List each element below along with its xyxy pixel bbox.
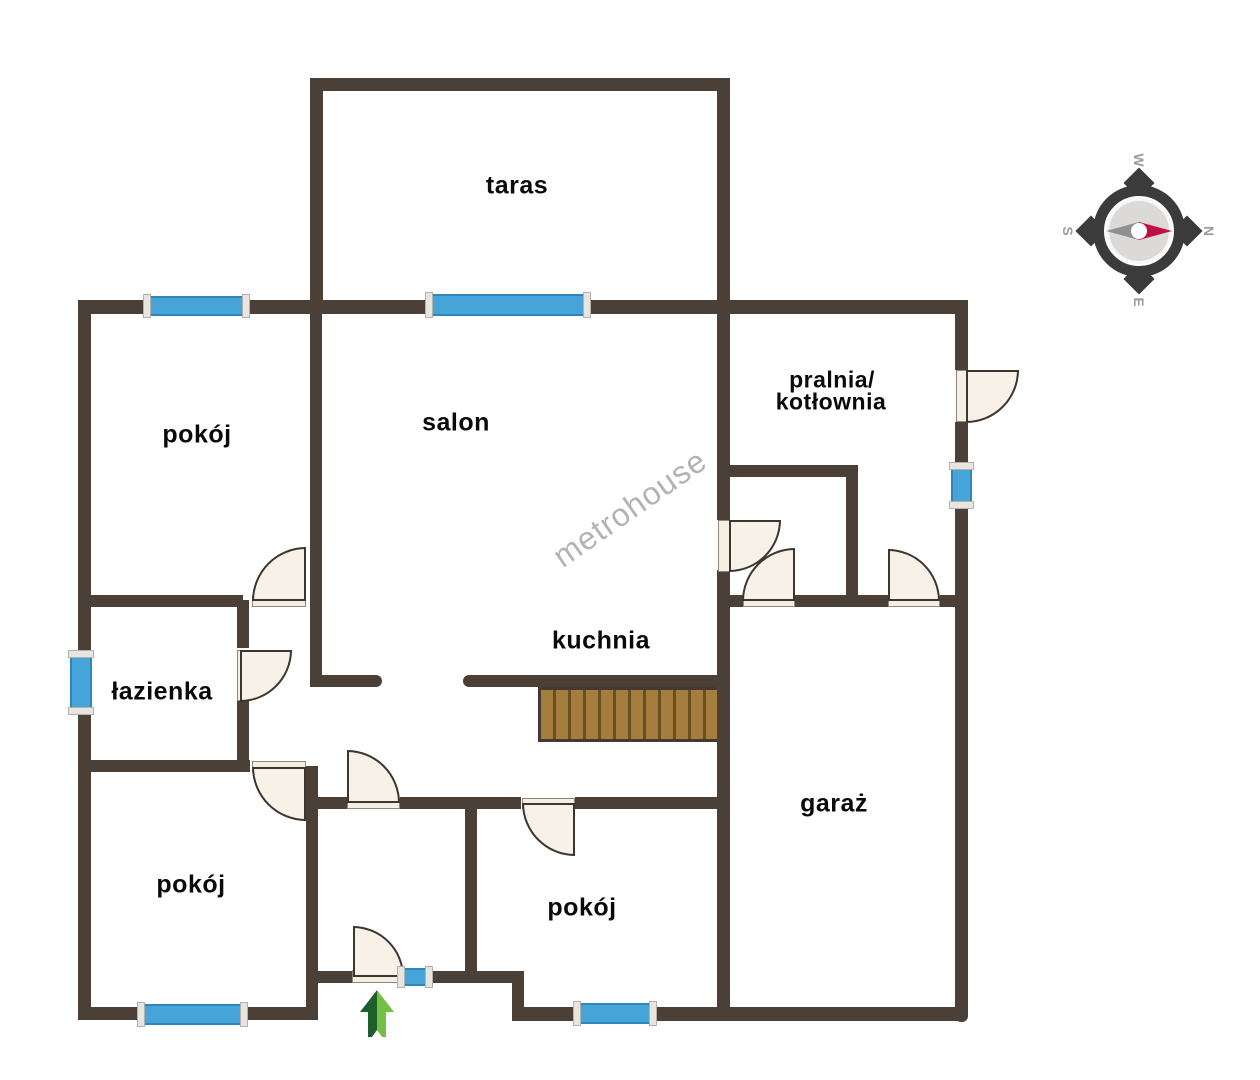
wall-lazienka-south <box>78 760 250 772</box>
compass-label-e: E <box>1131 297 1147 306</box>
compass-center-dot <box>1131 223 1147 239</box>
door-vestibule-corridor <box>347 750 400 803</box>
entrance-arrow-icon <box>352 985 402 1048</box>
wall-vestibule-south-1 <box>312 971 352 983</box>
label-pokoj-bottom-middle: pokój <box>547 894 616 923</box>
window-pralnia <box>951 467 972 504</box>
wall-kuchnia-south <box>463 675 723 687</box>
wall-house-east-upper <box>955 300 968 370</box>
window-pokoj-bottom-middle <box>578 1003 652 1024</box>
label-pralnia-line2: kotłownia <box>776 389 887 416</box>
label-kuchnia: kuchnia <box>552 627 650 656</box>
door-pokoj-top-left <box>252 547 306 601</box>
window-pokoj-bottom-left <box>142 1004 243 1025</box>
label-lazienka: łazienka <box>111 678 212 707</box>
door-pralnia-garage <box>888 549 940 601</box>
wall-taras-north <box>310 78 730 91</box>
wall-taras-west <box>310 78 323 306</box>
door-pokoj-bottom-middle <box>522 803 575 856</box>
door-pralnia-exterior <box>966 370 1019 423</box>
compass-label-n: N <box>1201 226 1217 236</box>
door-pokoj-bottom-left <box>252 767 306 821</box>
wall-vestibule-jog <box>512 971 524 1020</box>
wall-garage-north-3 <box>940 595 968 607</box>
window-taras-salon <box>430 294 586 316</box>
compass-rose: N E S W <box>1059 151 1219 311</box>
window-vestibule <box>402 968 428 986</box>
wall-vestibule-east <box>465 803 477 977</box>
wall-garage-north-1 <box>723 595 743 607</box>
label-pokoj-top-left: pokój <box>162 421 231 450</box>
wall-pralnia-inner-v <box>846 465 858 602</box>
wall-corridor-south-2 <box>400 797 521 809</box>
wall-house-east-lower <box>955 422 968 1022</box>
wall-lazienka-north <box>78 595 243 607</box>
compass-label-s: S <box>1060 226 1076 235</box>
window-pokoj-top-left <box>148 296 245 316</box>
wall-corridor-south-1 <box>318 797 347 809</box>
wall-vestibule-south-2 <box>427 971 512 983</box>
wall-garage-north-2 <box>795 595 888 607</box>
door-lazienka <box>240 650 292 702</box>
window-lazienka <box>70 655 92 710</box>
label-taras: taras <box>486 172 548 201</box>
wall-lazienka-east-lower <box>237 700 249 765</box>
label-salon: salon <box>422 409 490 438</box>
wall-salon-south <box>310 675 382 687</box>
wall-central-lower <box>717 570 730 1013</box>
wall-pralnia-inner-h <box>730 465 858 477</box>
floor-plan: metrohouse <box>0 0 1260 1080</box>
wall-salon-west <box>310 300 322 687</box>
wall-central-upper <box>717 300 730 520</box>
wall-lazienka-east-upper <box>237 600 249 648</box>
compass-label-w: W <box>1131 153 1147 166</box>
wall-corridor-south-3 <box>575 797 723 809</box>
wall-taras-east <box>717 78 730 306</box>
stairs <box>538 687 722 742</box>
label-pokoj-bottom-left: pokój <box>156 871 225 900</box>
label-garaz: garaż <box>800 790 868 819</box>
